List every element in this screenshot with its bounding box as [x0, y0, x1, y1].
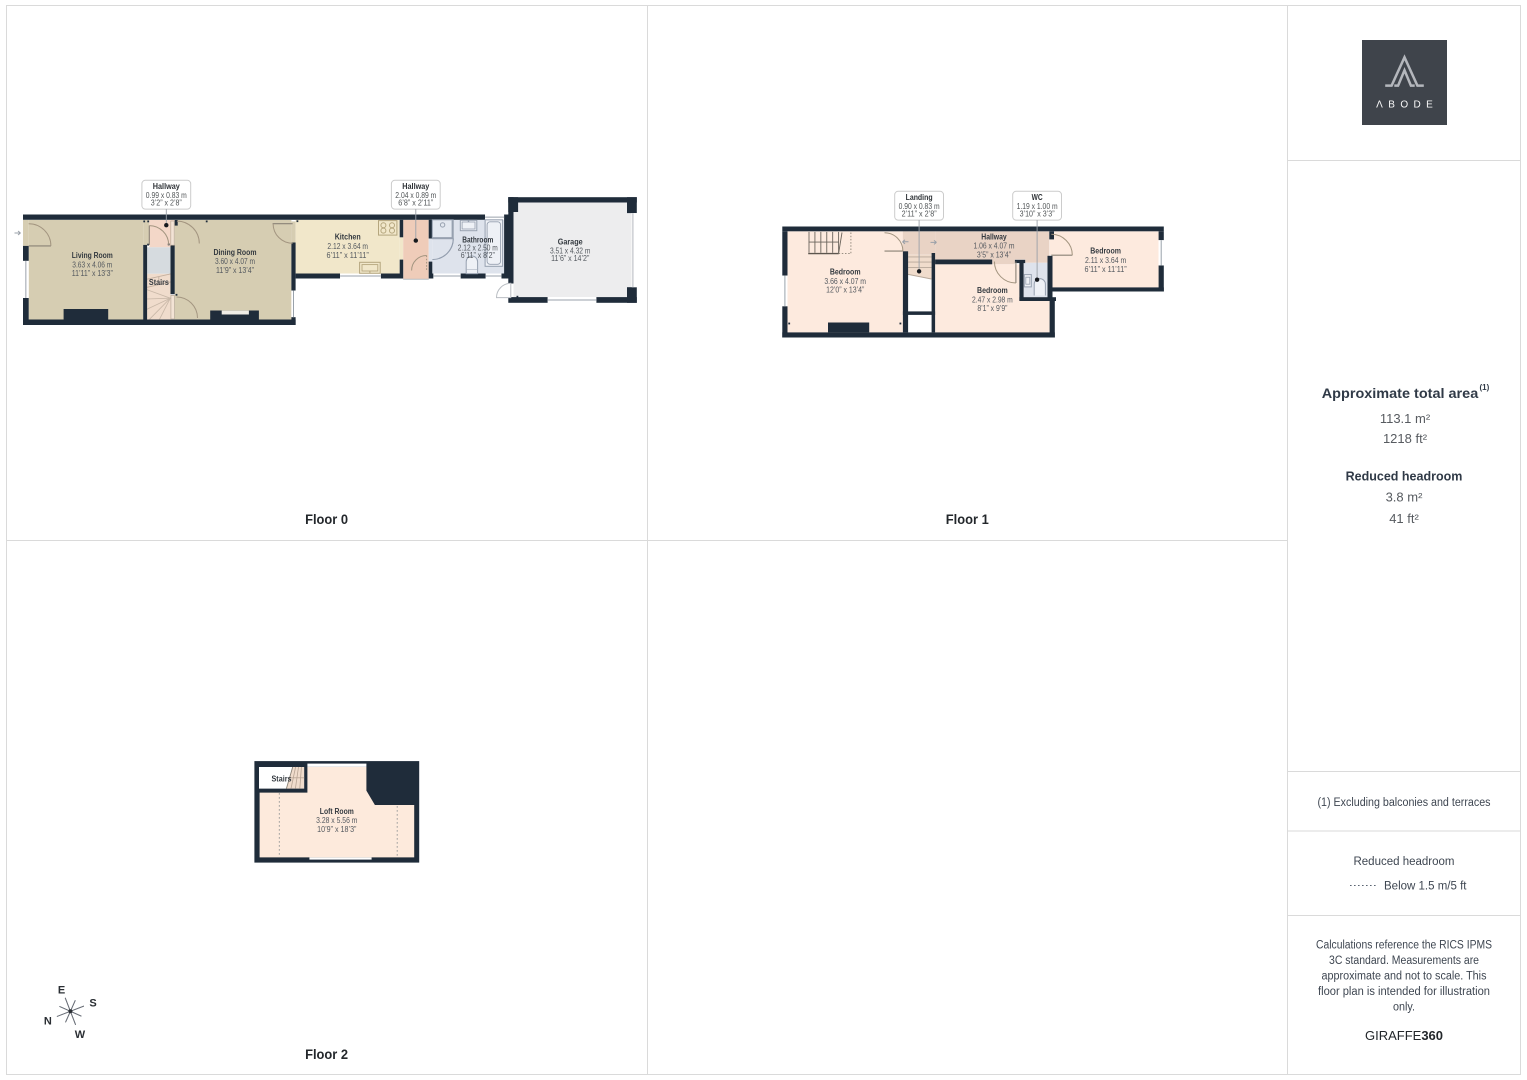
svg-text:2’11” x 2’8”: 2’11” x 2’8” — [902, 210, 937, 219]
svg-text:Approximate total area: Approximate total area — [1322, 386, 1479, 402]
svg-text:6’11” x 11’11”: 6’11” x 11’11” — [327, 251, 370, 260]
svg-text:GIRAFFE360: GIRAFFE360 — [1365, 1028, 1443, 1043]
svg-text:floor plan is intended for ill: floor plan is intended for illustration — [1318, 986, 1490, 998]
svg-text:Landing: Landing — [906, 192, 933, 202]
svg-text:Hallway: Hallway — [402, 181, 429, 191]
svg-text:2.11 x 3.64 m: 2.11 x 3.64 m — [1085, 256, 1126, 265]
svg-text:Hallway: Hallway — [981, 231, 1007, 241]
svg-text:Dining Room: Dining Room — [214, 247, 257, 257]
svg-text:Bedroom: Bedroom — [977, 285, 1008, 295]
svg-text:3’10” x 3’3”: 3’10” x 3’3” — [1020, 210, 1055, 219]
svg-text:Bedroom: Bedroom — [1090, 246, 1121, 256]
svg-text:3’5” x 13’4”: 3’5” x 13’4” — [977, 251, 1011, 260]
svg-text:WC: WC — [1032, 192, 1043, 202]
svg-text:N: N — [44, 1015, 52, 1027]
svg-text:113.1 m²: 113.1 m² — [1380, 411, 1431, 426]
svg-text:(1) Excluding balconies and te: (1) Excluding balconies and terraces — [1318, 797, 1491, 809]
svg-text:Floor 1: Floor 1 — [946, 512, 989, 527]
svg-text:Garage: Garage — [558, 237, 583, 247]
svg-text:Below 1.5 m/5 ft: Below 1.5 m/5 ft — [1384, 881, 1467, 893]
svg-text:1.06 x 4.07 m: 1.06 x 4.07 m — [974, 242, 1015, 251]
svg-text:Floor 0: Floor 0 — [305, 512, 348, 527]
svg-text:6’11” x 11’11”: 6’11” x 11’11” — [1085, 265, 1127, 274]
svg-text:Reduced headroom: Reduced headroom — [1346, 470, 1463, 484]
svg-text:11’6” x 14’2”: 11’6” x 14’2” — [551, 254, 589, 263]
svg-text:3.66 x 4.07 m: 3.66 x 4.07 m — [824, 277, 866, 286]
svg-text:3.28 x 5.56 m: 3.28 x 5.56 m — [316, 816, 357, 825]
svg-text:Bedroom: Bedroom — [830, 267, 861, 277]
svg-text:Stairs: Stairs — [149, 277, 169, 287]
svg-text:3.63 x 4.06 m: 3.63 x 4.06 m — [72, 260, 112, 269]
svg-text:41 ft²: 41 ft² — [1389, 511, 1419, 526]
svg-text:Living Room: Living Room — [72, 250, 113, 260]
svg-text:Stairs: Stairs — [272, 774, 292, 784]
svg-text:2.12 x 3.64 m: 2.12 x 3.64 m — [327, 242, 368, 251]
svg-text:6’8” x 2’11”: 6’8” x 2’11” — [398, 199, 433, 208]
svg-text:Hallway: Hallway — [153, 181, 180, 191]
svg-text:3C standard. Measurements are: 3C standard. Measurements are — [1329, 955, 1479, 967]
svg-text:Loft Room: Loft Room — [320, 806, 354, 816]
svg-text:6’11” x 8’2”: 6’11” x 8’2” — [461, 251, 495, 260]
svg-text:1218 ft²: 1218 ft² — [1383, 431, 1428, 446]
svg-text:2.47 x 2.98 m: 2.47 x 2.98 m — [972, 295, 1013, 304]
svg-text:S: S — [89, 998, 96, 1010]
svg-text:8’1” x 9’9”: 8’1” x 9’9” — [977, 304, 1007, 313]
svg-text:Calculations reference the RIC: Calculations reference the RICS IPMS — [1316, 940, 1492, 952]
svg-text:Reduced headroom: Reduced headroom — [1353, 856, 1454, 868]
svg-text:only.: only. — [1393, 1002, 1415, 1014]
svg-text:3.8 m²: 3.8 m² — [1386, 490, 1424, 505]
svg-text:10’9” x 18’3”: 10’9” x 18’3” — [317, 825, 357, 834]
svg-text:3’2” x 2’8”: 3’2” x 2’8” — [151, 199, 182, 208]
svg-text:(1): (1) — [1480, 383, 1490, 392]
svg-text:3.60 x 4.07 m: 3.60 x 4.07 m — [215, 257, 255, 266]
svg-text:E: E — [58, 985, 65, 997]
svg-text:12’0” x 13’4”: 12’0” x 13’4” — [826, 286, 864, 295]
svg-text:11’9” x 13’4”: 11’9” x 13’4” — [216, 266, 254, 275]
svg-text:ΛBODE: ΛBODE — [1376, 100, 1438, 111]
svg-text:W: W — [75, 1029, 86, 1041]
svg-text:Floor 2: Floor 2 — [305, 1047, 348, 1062]
svg-text:11’11” x 13’3”: 11’11” x 13’3” — [72, 269, 113, 278]
svg-text:approximate and not to scale.: approximate and not to scale. This — [1322, 971, 1487, 983]
svg-text:Kitchen: Kitchen — [335, 232, 361, 242]
